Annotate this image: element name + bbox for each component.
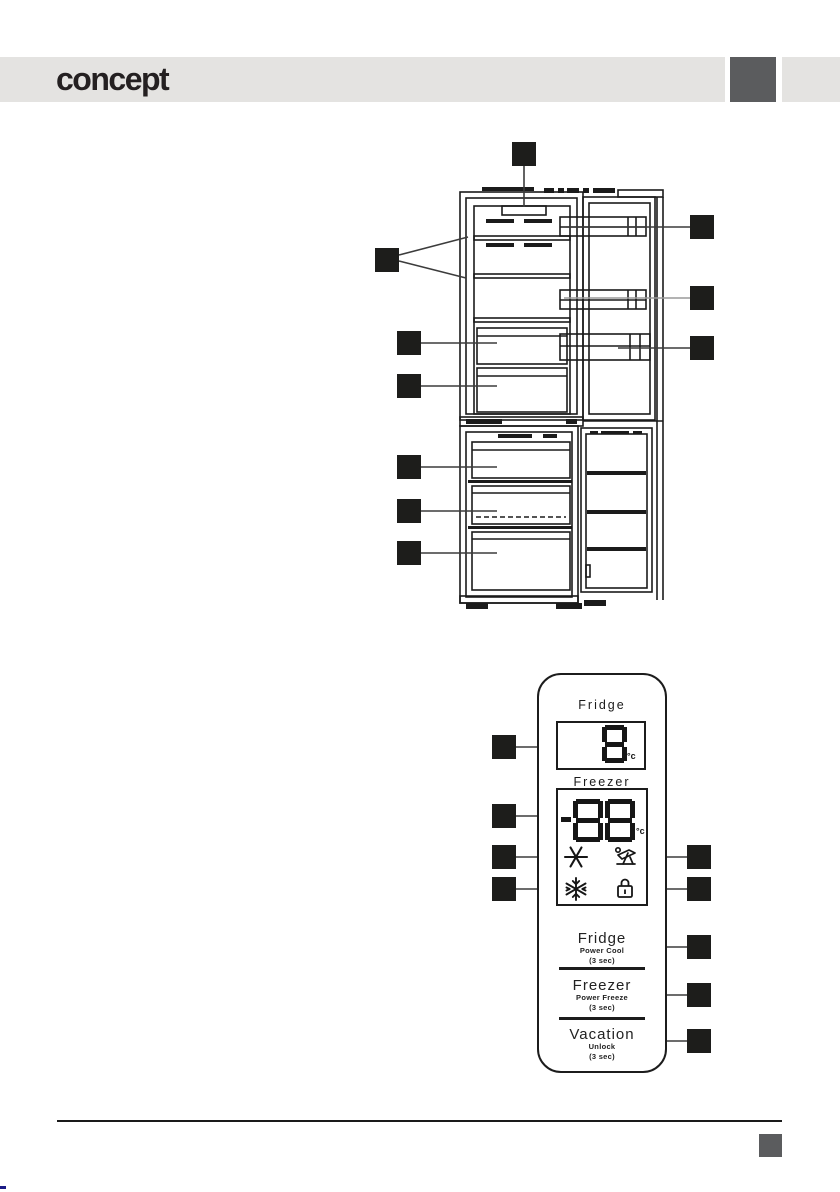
footer-rule bbox=[57, 1120, 782, 1122]
callout-marker-17 bbox=[687, 935, 711, 959]
callout-marker-7 bbox=[397, 541, 421, 565]
callout-marker-10 bbox=[690, 336, 714, 360]
panel-divider bbox=[559, 1017, 645, 1020]
callout-marker-13 bbox=[492, 845, 516, 869]
callout-marker-2 bbox=[375, 248, 399, 272]
freeze-icon bbox=[563, 876, 589, 902]
fridge-temp-unit: °c bbox=[627, 751, 636, 761]
cool-icon bbox=[563, 844, 589, 870]
callout-marker-8 bbox=[690, 215, 714, 239]
freezer-temp-unit: °c bbox=[636, 826, 645, 836]
fridge-temp-display: 8 °c bbox=[556, 721, 646, 770]
fridge-section-label: Fridge bbox=[539, 698, 665, 712]
fridge-power-cool-button: Fridge Power Cool (3 sec) bbox=[539, 931, 665, 965]
vacation-icon bbox=[613, 844, 639, 870]
refrigerator-line-art bbox=[0, 0, 840, 1192]
callout-marker-4 bbox=[397, 374, 421, 398]
callout-marker-9 bbox=[690, 286, 714, 310]
lock-icon bbox=[612, 875, 638, 901]
manual-page: concept bbox=[0, 0, 840, 1192]
panel-divider bbox=[559, 967, 645, 970]
callout-marker-12 bbox=[492, 804, 516, 828]
footer-accent-square bbox=[759, 1134, 782, 1157]
callout-marker-6 bbox=[397, 499, 421, 523]
callout-marker-3 bbox=[397, 331, 421, 355]
seven-segment-digit bbox=[602, 725, 627, 763]
freezer-temp-display: -88 °c bbox=[556, 788, 648, 906]
callout-marker-5 bbox=[397, 455, 421, 479]
vacation-unlock-button: Vacation Unlock (3 sec) bbox=[539, 1027, 665, 1061]
control-panel: Fridge 8 °c Freezer -88 °c bbox=[537, 673, 667, 1073]
seven-segment-digit bbox=[605, 799, 635, 842]
callout-marker-18 bbox=[687, 983, 711, 1007]
callout-marker-1 bbox=[512, 142, 536, 166]
minus-sign bbox=[561, 817, 571, 822]
scan-artifact-dot bbox=[0, 1186, 6, 1189]
fridge-temp-value: 8 bbox=[558, 723, 559, 724]
callout-marker-14 bbox=[492, 877, 516, 901]
callout-marker-19 bbox=[687, 1029, 711, 1053]
callout-marker-15 bbox=[687, 845, 711, 869]
freezer-temp-value: -88 bbox=[558, 790, 559, 791]
callout-marker-11 bbox=[492, 735, 516, 759]
seven-segment-digit bbox=[573, 799, 603, 842]
callout-marker-16 bbox=[687, 877, 711, 901]
freezer-power-freeze-button: Freezer Power Freeze (3 sec) bbox=[539, 978, 665, 1012]
freezer-section-label: Freezer bbox=[539, 775, 665, 789]
